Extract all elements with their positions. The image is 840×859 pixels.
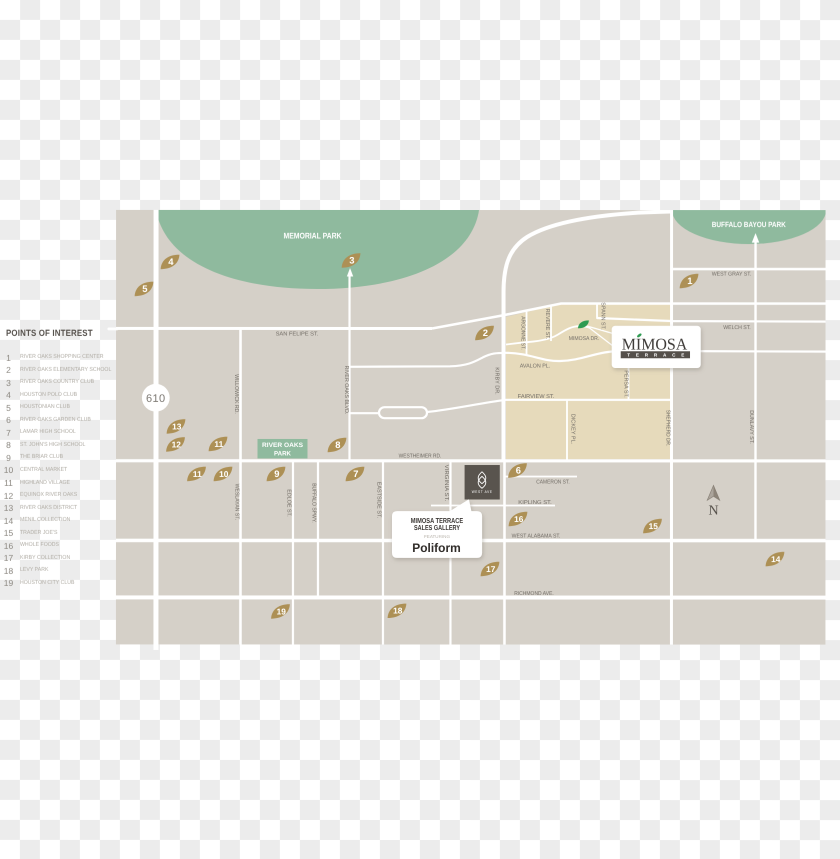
svg-text:1: 1 — [687, 275, 692, 286]
svg-text:KIRBY DR.: KIRBY DR. — [494, 367, 500, 395]
svg-text:6: 6 — [516, 464, 521, 475]
svg-text:2: 2 — [483, 327, 488, 338]
svg-text:PERSA ST.: PERSA ST. — [623, 370, 629, 398]
svg-text:RIVER OAKS BLVD.: RIVER OAKS BLVD. — [343, 366, 349, 415]
svg-text:WILLOWICK RD.: WILLOWICK RD. — [233, 374, 239, 414]
svg-text:5: 5 — [142, 283, 147, 294]
svg-text:RICHMOND AVE.: RICHMOND AVE. — [514, 591, 554, 597]
svg-text:15: 15 — [649, 521, 659, 531]
svg-text:ARGONNE ST.: ARGONNE ST. — [520, 316, 526, 350]
svg-text:VIRGINIA ST.: VIRGINIA ST. — [443, 465, 449, 502]
svg-text:SAN FELIPE ST.: SAN FELIPE ST. — [276, 331, 319, 337]
svg-text:11: 11 — [214, 439, 223, 449]
svg-text:DUNLAVY ST.: DUNLAVY ST. — [748, 410, 754, 444]
svg-text:18: 18 — [393, 606, 403, 616]
svg-text:WEST AVE: WEST AVE — [472, 489, 493, 494]
svg-text:SPANN ST.: SPANN ST. — [600, 302, 606, 330]
svg-text:12: 12 — [172, 439, 182, 449]
svg-text:CAMERON ST.: CAMERON ST. — [536, 479, 570, 485]
svg-text:WESTHEIMER RD.: WESTHEIMER RD. — [399, 453, 442, 459]
svg-text:AVALON PL.: AVALON PL. — [520, 364, 551, 370]
svg-text:MEMORIAL PARK: MEMORIAL PARK — [284, 231, 342, 240]
svg-text:10: 10 — [219, 469, 229, 479]
svg-text:DICKEY PL.: DICKEY PL. — [569, 414, 575, 445]
svg-text:19: 19 — [277, 606, 287, 616]
svg-text:WEST GRAY ST.: WEST GRAY ST. — [712, 272, 752, 278]
svg-text:14: 14 — [771, 554, 781, 564]
svg-text:EASTSIDE ST.: EASTSIDE ST. — [375, 482, 381, 519]
svg-text:PARK: PARK — [274, 450, 291, 457]
svg-text:KIPLING ST.: KIPLING ST. — [518, 500, 552, 506]
svg-text:FEATURING: FEATURING — [424, 534, 450, 539]
svg-text:16: 16 — [514, 514, 524, 524]
svg-text:MIMOSA: MIMOSA — [622, 334, 688, 353]
svg-text:MIMOSA DR.: MIMOSA DR. — [569, 336, 600, 342]
svg-text:WEST ALABAMA ST.: WEST ALABAMA ST. — [512, 533, 561, 539]
svg-text:3: 3 — [349, 254, 354, 265]
svg-text:7: 7 — [353, 468, 358, 479]
svg-text:N: N — [708, 504, 718, 519]
svg-text:REVERE ST.: REVERE ST. — [544, 309, 550, 340]
svg-text:9: 9 — [274, 468, 279, 479]
svg-text:SALES GALLERY: SALES GALLERY — [414, 523, 460, 532]
svg-text:17: 17 — [486, 564, 496, 574]
svg-text:WESLAYAN ST.: WESLAYAN ST. — [233, 484, 239, 521]
svg-text:4: 4 — [168, 256, 174, 267]
svg-text:13: 13 — [172, 421, 182, 431]
svg-text:EDLOE ST.: EDLOE ST. — [285, 489, 291, 517]
svg-text:WELCH ST.: WELCH ST. — [723, 325, 751, 331]
svg-text:Poliform: Poliform — [412, 541, 461, 555]
svg-text:8: 8 — [335, 439, 340, 450]
svg-text:RIVER OAKS: RIVER OAKS — [262, 442, 303, 449]
svg-text:11: 11 — [193, 469, 202, 479]
svg-text:BUFFALO SPWY.: BUFFALO SPWY. — [310, 483, 316, 523]
svg-text:BUFFALO BAYOU PARK: BUFFALO BAYOU PARK — [712, 220, 786, 229]
svg-text:SHEPHERD DR.: SHEPHERD DR. — [664, 410, 670, 447]
svg-text:610: 610 — [146, 393, 166, 405]
svg-text:FAIRVIEW ST.: FAIRVIEW ST. — [518, 394, 555, 400]
